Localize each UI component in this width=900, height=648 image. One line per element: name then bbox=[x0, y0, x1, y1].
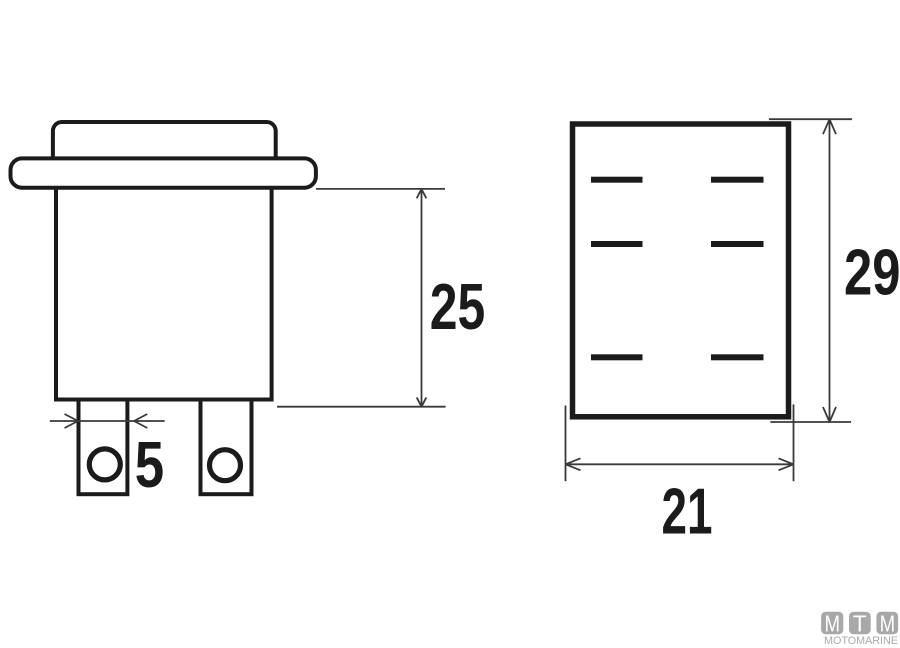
svg-text:25: 25 bbox=[430, 271, 486, 343]
svg-text:T: T bbox=[853, 611, 867, 637]
svg-text:29: 29 bbox=[844, 236, 900, 308]
svg-text:5: 5 bbox=[135, 429, 164, 501]
svg-text:M: M bbox=[825, 611, 841, 637]
svg-text:21: 21 bbox=[662, 475, 713, 547]
svg-text:MOTOMARINE: MOTOMARINE bbox=[824, 635, 898, 647]
svg-text:M: M bbox=[880, 611, 896, 637]
